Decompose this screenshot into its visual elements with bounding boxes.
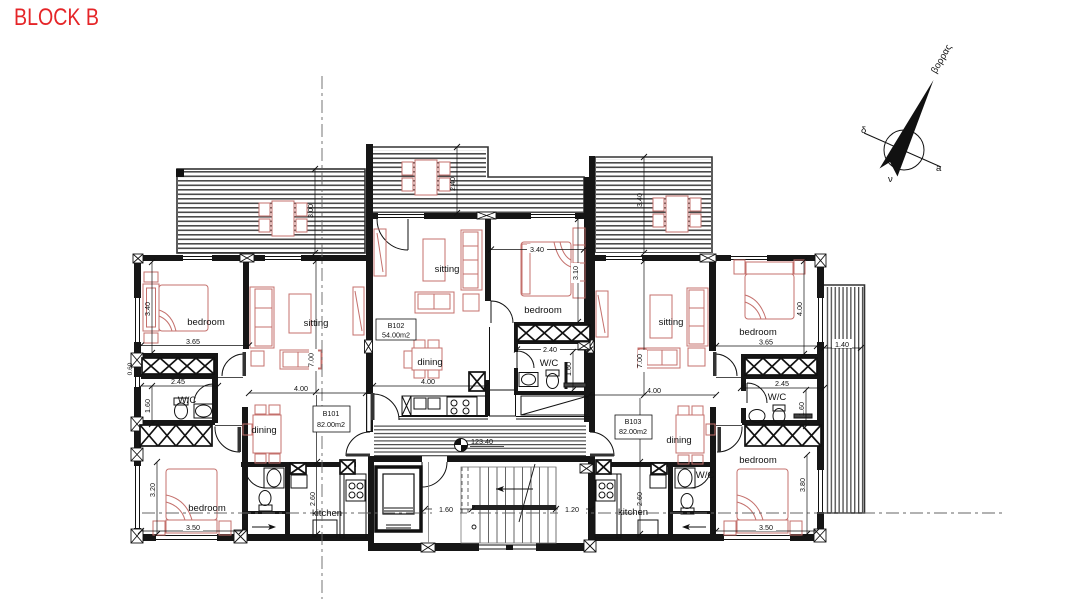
svg-text:3.40: 3.40 bbox=[143, 302, 152, 316]
svg-text:7.00: 7.00 bbox=[307, 353, 316, 367]
svg-text:kitchen: kitchen bbox=[312, 508, 342, 519]
svg-text:3.80: 3.80 bbox=[798, 478, 807, 492]
svg-text:4.00: 4.00 bbox=[294, 384, 308, 393]
svg-text:bedroom: bedroom bbox=[188, 503, 226, 514]
svg-text:bedroom: bedroom bbox=[739, 455, 777, 466]
svg-text:2.60: 2.60 bbox=[635, 492, 644, 506]
svg-text:2.45: 2.45 bbox=[775, 379, 789, 388]
svg-text:3.00: 3.00 bbox=[306, 204, 315, 218]
svg-text:2.40: 2.40 bbox=[448, 177, 457, 191]
svg-text:dining: dining bbox=[417, 357, 442, 368]
svg-text:sitting: sitting bbox=[435, 264, 460, 275]
svg-text:dining: dining bbox=[251, 425, 276, 436]
svg-text:4.00: 4.00 bbox=[647, 386, 661, 395]
svg-text:1.60: 1.60 bbox=[797, 402, 806, 416]
svg-text:bedroom: bedroom bbox=[524, 305, 562, 316]
svg-text:1.40: 1.40 bbox=[835, 340, 849, 349]
svg-text:3.65: 3.65 bbox=[759, 338, 773, 347]
svg-text:B103: B103 bbox=[625, 417, 642, 426]
svg-text:kitchen: kitchen bbox=[618, 507, 648, 518]
svg-text:sitting: sitting bbox=[304, 318, 329, 329]
svg-text:W/C: W/C bbox=[768, 392, 787, 403]
svg-text:1.60: 1.60 bbox=[439, 505, 453, 514]
svg-text:BLOCK B: BLOCK B bbox=[14, 4, 99, 31]
svg-text:bedroom: bedroom bbox=[187, 317, 225, 328]
svg-text:3.10: 3.10 bbox=[571, 266, 580, 280]
svg-text:sitting: sitting bbox=[659, 317, 684, 328]
svg-text:1.20: 1.20 bbox=[565, 505, 579, 514]
svg-text:1.60: 1.60 bbox=[564, 362, 573, 376]
svg-text:3.40: 3.40 bbox=[530, 245, 544, 254]
svg-text:3.65: 3.65 bbox=[186, 337, 200, 346]
svg-text:7.00: 7.00 bbox=[635, 354, 644, 368]
svg-text:3.50: 3.50 bbox=[186, 523, 200, 532]
svg-text:ν: ν bbox=[888, 174, 893, 185]
svg-text:3.20: 3.20 bbox=[148, 483, 157, 497]
svg-text:a: a bbox=[936, 163, 942, 174]
svg-text:54.00m2: 54.00m2 bbox=[382, 331, 410, 340]
svg-text:δ: δ bbox=[861, 125, 866, 136]
svg-text:4.00: 4.00 bbox=[421, 377, 435, 386]
svg-text:2.45: 2.45 bbox=[171, 377, 185, 386]
svg-text:123.40: 123.40 bbox=[471, 437, 493, 446]
svg-text:82.00m2: 82.00m2 bbox=[619, 427, 647, 436]
svg-text:W/C: W/C bbox=[540, 358, 559, 369]
svg-text:3.50: 3.50 bbox=[759, 523, 773, 532]
svg-text:W/C: W/C bbox=[696, 470, 715, 481]
svg-text:0.60: 0.60 bbox=[127, 362, 134, 375]
svg-text:82.00m2: 82.00m2 bbox=[317, 420, 345, 429]
svg-text:B101: B101 bbox=[323, 409, 340, 418]
svg-text:W/C: W/C bbox=[178, 395, 197, 406]
svg-text:1.60: 1.60 bbox=[143, 399, 152, 413]
svg-text:2.60: 2.60 bbox=[308, 492, 317, 506]
svg-text:3.40: 3.40 bbox=[635, 193, 644, 207]
svg-text:4.00: 4.00 bbox=[795, 302, 804, 316]
svg-text:βορρας: βορρας bbox=[929, 42, 955, 75]
svg-text:bedroom: bedroom bbox=[739, 327, 777, 338]
svg-text:B102: B102 bbox=[388, 321, 405, 330]
svg-text:2.40: 2.40 bbox=[543, 345, 557, 354]
svg-text:dining: dining bbox=[666, 435, 691, 446]
